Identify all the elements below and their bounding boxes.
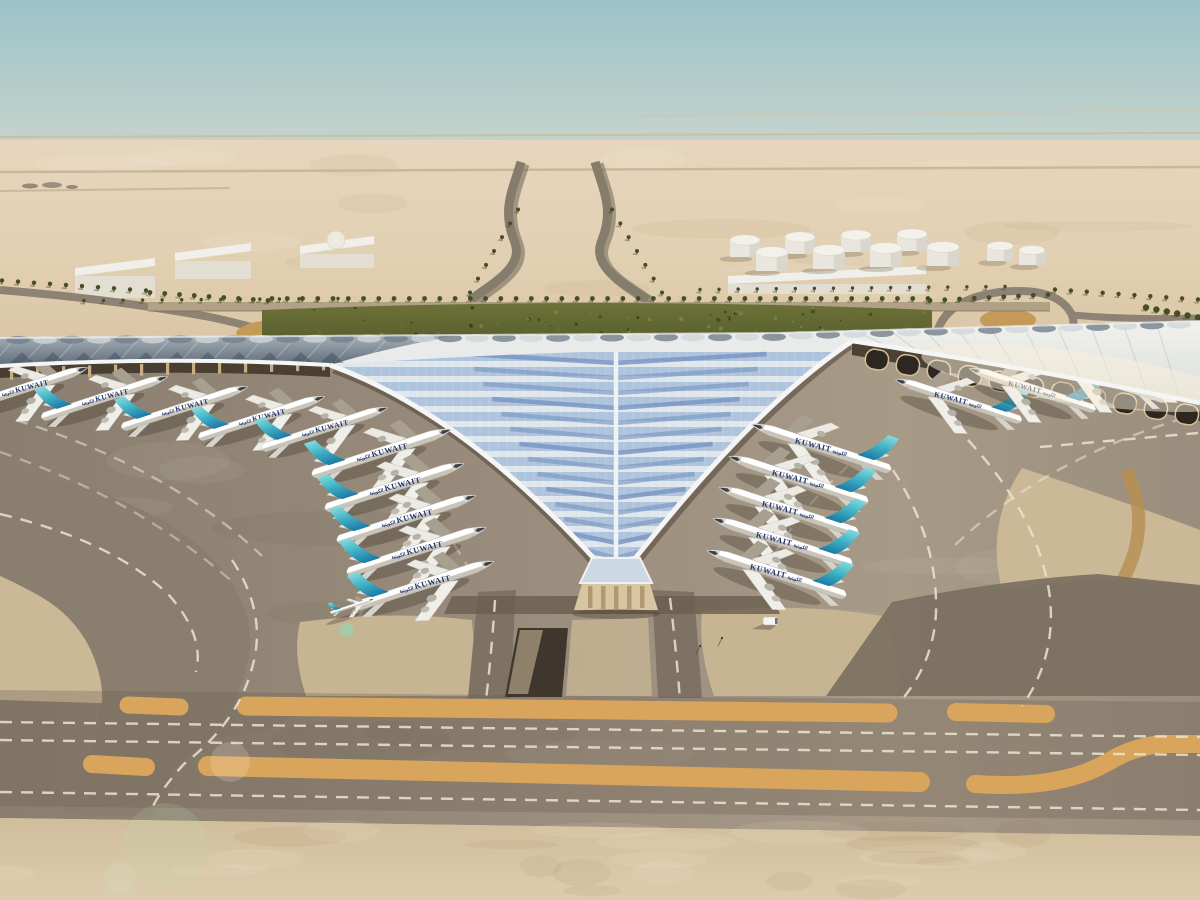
palm-tree bbox=[635, 249, 639, 253]
hedge-speckle bbox=[354, 307, 357, 310]
palm-tree bbox=[957, 297, 962, 302]
desert-patch bbox=[311, 154, 397, 176]
palm-tree bbox=[82, 299, 85, 302]
fuel-tank-top bbox=[1019, 246, 1045, 255]
palm-tree bbox=[331, 296, 336, 301]
pavilion-column bbox=[640, 586, 645, 608]
palm-tree bbox=[1164, 295, 1168, 299]
unpaved-strip bbox=[128, 705, 180, 707]
palm-shadow bbox=[315, 301, 319, 303]
palm-tree bbox=[1148, 294, 1152, 298]
apron-pole bbox=[699, 645, 701, 647]
palm-tree bbox=[80, 284, 84, 288]
palm-shadow bbox=[734, 291, 738, 293]
palm-tree bbox=[1180, 296, 1184, 300]
sand-stain bbox=[520, 855, 562, 877]
palm-shadow bbox=[139, 302, 143, 304]
hedge-speckle bbox=[800, 326, 802, 328]
palm-tree bbox=[1100, 291, 1104, 295]
palm-shadow bbox=[696, 292, 700, 294]
palm-tree bbox=[712, 296, 717, 301]
hedge-speckle bbox=[648, 318, 652, 322]
sand-island-center-left bbox=[297, 615, 478, 696]
hedge-speckle bbox=[527, 318, 530, 321]
palm-tree bbox=[207, 294, 212, 299]
palm-tree bbox=[251, 297, 256, 302]
palm-tree bbox=[660, 291, 664, 295]
palm-tree bbox=[514, 296, 519, 301]
hedge-speckle bbox=[479, 317, 482, 320]
hedge-speckle bbox=[363, 320, 365, 322]
palm-tree bbox=[484, 263, 488, 267]
apron-pole bbox=[721, 637, 723, 639]
palm-tree bbox=[160, 298, 163, 301]
roof-scallop bbox=[762, 333, 786, 341]
fuel-tank-top bbox=[927, 242, 959, 253]
palm-tree bbox=[361, 296, 366, 301]
hedge-speckle bbox=[626, 317, 628, 319]
palm-tree bbox=[682, 296, 687, 301]
palm-tree bbox=[605, 296, 610, 301]
unpaved-strip bbox=[956, 712, 1046, 714]
palm-tree bbox=[819, 296, 824, 301]
palm-tree bbox=[908, 286, 911, 289]
palm-tree bbox=[285, 296, 290, 301]
palm-shadow bbox=[236, 301, 240, 303]
palm-tree bbox=[666, 296, 671, 301]
hedge-speckle bbox=[774, 317, 778, 321]
palm-tree bbox=[946, 285, 949, 288]
palm-tree bbox=[180, 298, 183, 301]
palm-tree bbox=[1184, 312, 1190, 318]
palm-shadow bbox=[868, 290, 872, 292]
sand-stain bbox=[303, 820, 379, 842]
palm-tree bbox=[112, 286, 116, 290]
palm-shadow bbox=[944, 289, 948, 291]
palm-shadow bbox=[830, 290, 834, 292]
hedge-speckle bbox=[317, 330, 321, 334]
sand-stain bbox=[206, 849, 302, 869]
hedge-speckle bbox=[549, 325, 551, 327]
palm-tree bbox=[865, 296, 870, 301]
warehouse-front bbox=[175, 261, 251, 279]
palm-shadow bbox=[100, 302, 104, 304]
desert-patch bbox=[837, 197, 925, 214]
palm-tree bbox=[1132, 293, 1136, 297]
palm-tree bbox=[965, 285, 968, 288]
service-road-right bbox=[1072, 315, 1200, 319]
hedge-speckle bbox=[410, 321, 412, 323]
palm-tree bbox=[468, 291, 472, 295]
palm-tree bbox=[407, 296, 412, 301]
palm-tree bbox=[498, 296, 503, 301]
sand-stain bbox=[532, 823, 667, 838]
hedge-speckle bbox=[589, 312, 591, 314]
canopy-column bbox=[140, 364, 143, 376]
hedge-speckle bbox=[495, 322, 499, 326]
palm-shadow bbox=[276, 301, 280, 303]
unpaved-strip bbox=[92, 764, 146, 767]
sand-stain bbox=[836, 879, 907, 899]
sand-stain bbox=[563, 885, 622, 896]
palm-tree bbox=[851, 286, 854, 289]
palm-tree bbox=[775, 287, 778, 290]
palm-tree bbox=[483, 296, 488, 301]
palm-tree bbox=[128, 287, 132, 291]
palm-tree bbox=[1116, 292, 1120, 296]
palm-tree bbox=[559, 296, 564, 301]
palm-tree bbox=[1053, 287, 1057, 291]
palm-tree bbox=[422, 296, 427, 301]
fuel-tank-top bbox=[841, 230, 871, 240]
hedge-speckle bbox=[556, 327, 560, 331]
palm-tree bbox=[804, 296, 809, 301]
palm-tree bbox=[813, 287, 816, 290]
hedge-speckle bbox=[471, 306, 474, 309]
palm-tree bbox=[575, 296, 580, 301]
hedge-speckle bbox=[840, 320, 842, 322]
palm-tree bbox=[162, 291, 167, 296]
palm-tree bbox=[870, 286, 873, 289]
sand-stain bbox=[868, 851, 961, 864]
palm-tree bbox=[544, 296, 549, 301]
palm-tree bbox=[651, 296, 656, 301]
palm-tree bbox=[476, 277, 480, 281]
palm-tree bbox=[942, 297, 947, 302]
palm-shadow bbox=[791, 291, 795, 293]
hedge-speckle bbox=[719, 327, 723, 331]
pavilion-column bbox=[627, 586, 632, 609]
palm-tree bbox=[832, 286, 835, 289]
desert-patch bbox=[632, 219, 811, 239]
palm-shadow bbox=[772, 291, 776, 293]
palm-tree bbox=[300, 296, 305, 301]
palm-tree bbox=[717, 288, 720, 291]
palm-shadow bbox=[217, 301, 221, 303]
palm-tree bbox=[192, 293, 197, 298]
concrete-island-center bbox=[566, 618, 652, 696]
lens-flare-spot bbox=[104, 862, 136, 894]
fuel-tank-top bbox=[870, 243, 902, 254]
fuel-tank-top bbox=[785, 232, 815, 242]
palm-tree bbox=[1164, 308, 1170, 314]
hedge-speckle bbox=[699, 318, 701, 320]
palm-shadow bbox=[849, 290, 853, 292]
desert-patch bbox=[1002, 221, 1194, 231]
aerial-airport-rendering: الكويتية KUWAITالكويتية KUWAITالكويتية K… bbox=[0, 0, 1200, 900]
palm-tree bbox=[1031, 293, 1036, 298]
hedge-speckle bbox=[735, 311, 737, 313]
palm-tree bbox=[758, 296, 763, 301]
palm-tree bbox=[636, 296, 641, 301]
fuel-tank-top bbox=[897, 229, 927, 239]
hedge-speckle bbox=[551, 321, 555, 325]
hedge-speckle bbox=[707, 325, 710, 328]
palm-tree bbox=[516, 208, 520, 212]
palm-tree bbox=[620, 296, 625, 301]
hedge-speckle bbox=[716, 318, 721, 323]
palm-tree bbox=[727, 296, 732, 301]
palm-tree bbox=[1085, 290, 1089, 294]
sand-stain bbox=[553, 859, 610, 887]
render-canvas: الكويتية KUWAITالكويتية KUWAITالكويتية K… bbox=[0, 0, 1200, 900]
palm-tree bbox=[266, 298, 271, 303]
fuel-tank-top bbox=[730, 235, 760, 245]
palm-tree bbox=[1046, 292, 1051, 297]
palm-tree bbox=[317, 297, 320, 300]
sand-stain bbox=[464, 840, 559, 849]
fuel-tank-top bbox=[987, 242, 1013, 251]
palm-tree bbox=[141, 298, 144, 301]
hedge-speckle bbox=[848, 316, 852, 320]
lens-flare-spot bbox=[340, 623, 354, 637]
palm-tree bbox=[392, 296, 397, 301]
sand-stain bbox=[767, 872, 813, 892]
palm-tree bbox=[219, 298, 222, 301]
glazed-gable bbox=[580, 558, 652, 583]
fuel-tank-top bbox=[756, 247, 788, 258]
palm-tree bbox=[529, 296, 534, 301]
hedge-speckle bbox=[562, 310, 566, 314]
dome-structure bbox=[327, 231, 345, 249]
sand-stain bbox=[846, 836, 981, 853]
hedge-speckle bbox=[627, 328, 629, 330]
hedge-speckle bbox=[636, 316, 639, 319]
palm-tree bbox=[200, 298, 203, 301]
desert-patch bbox=[910, 159, 1053, 168]
palm-shadow bbox=[925, 289, 929, 291]
palm-tree bbox=[1143, 304, 1149, 310]
palm-tree bbox=[144, 288, 148, 292]
palm-tree bbox=[376, 296, 381, 301]
palm-shadow bbox=[178, 302, 182, 304]
palm-shadow bbox=[963, 289, 967, 291]
palm-shadow bbox=[1001, 289, 1005, 291]
lens-flare-spot bbox=[210, 742, 250, 782]
palm-tree bbox=[755, 287, 758, 290]
hedge-speckle bbox=[537, 318, 540, 321]
palm-tree bbox=[788, 296, 793, 301]
palm-tree bbox=[880, 296, 885, 301]
palm-tree bbox=[437, 296, 442, 301]
palm-tree bbox=[927, 286, 930, 289]
pavilion-column bbox=[601, 586, 606, 609]
hedge-speckle bbox=[483, 317, 485, 319]
palm-tree bbox=[743, 296, 748, 301]
hedge-speckle bbox=[400, 324, 403, 327]
palm-shadow bbox=[753, 291, 757, 293]
hedge-speckle bbox=[905, 324, 907, 326]
palm-tree bbox=[736, 287, 739, 290]
hedge-speckle bbox=[313, 309, 315, 311]
palm-shadow bbox=[80, 303, 84, 305]
hedge-speckle bbox=[469, 324, 473, 328]
hedge-speckle bbox=[709, 314, 711, 316]
hedge-speckle bbox=[819, 326, 821, 328]
sand-stain bbox=[729, 821, 868, 844]
hedge-speckle bbox=[792, 321, 794, 323]
hedge-speckle bbox=[598, 315, 601, 318]
palm-tree bbox=[697, 296, 702, 301]
palm-tree bbox=[148, 290, 153, 295]
hedge-speckle bbox=[575, 323, 578, 326]
palm-shadow bbox=[256, 301, 260, 303]
palm-tree bbox=[928, 298, 933, 303]
palm-tree bbox=[849, 296, 854, 301]
palm-tree bbox=[1016, 294, 1021, 299]
bus-windshield bbox=[775, 618, 778, 624]
palm-tree bbox=[336, 297, 339, 300]
palm-tree bbox=[346, 296, 351, 301]
palm-tree bbox=[895, 296, 900, 301]
palm-tree bbox=[258, 297, 261, 300]
palm-tree bbox=[652, 277, 656, 281]
hedge-speckle bbox=[679, 317, 683, 321]
palm-tree bbox=[48, 282, 52, 286]
palm-tree bbox=[96, 285, 100, 289]
palm-tree bbox=[889, 286, 892, 289]
palm-tree bbox=[102, 299, 105, 302]
palm-shadow bbox=[334, 301, 338, 303]
palm-tree bbox=[500, 235, 504, 239]
palm-tree bbox=[590, 296, 595, 301]
palm-tree bbox=[794, 287, 797, 290]
lens-flare-spot bbox=[123, 803, 207, 887]
hedge-speckle bbox=[480, 324, 484, 328]
palm-shadow bbox=[158, 302, 162, 304]
desert-patch bbox=[337, 193, 407, 213]
palm-shadow bbox=[906, 289, 910, 291]
palm-tree bbox=[64, 283, 68, 287]
hedge-speckle bbox=[724, 311, 727, 314]
palm-tree bbox=[1069, 288, 1073, 292]
palm-tree bbox=[1174, 310, 1180, 316]
canopy-column bbox=[218, 361, 221, 373]
desert-patch bbox=[127, 149, 237, 166]
pavilion-column bbox=[614, 586, 619, 609]
sand-stain bbox=[964, 842, 1027, 860]
palm-tree bbox=[32, 281, 36, 285]
palm-shadow bbox=[119, 302, 123, 304]
palm-tree bbox=[16, 279, 20, 283]
palm-tree bbox=[121, 298, 124, 301]
palm-shadow bbox=[715, 291, 719, 293]
palm-tree bbox=[627, 235, 631, 239]
palm-tree bbox=[1001, 294, 1006, 299]
palm-tree bbox=[468, 296, 473, 301]
unpaved-strip bbox=[246, 706, 888, 713]
palm-shadow bbox=[197, 302, 201, 304]
palm-tree bbox=[508, 221, 512, 225]
fuel-tank-top bbox=[813, 245, 845, 256]
palm-shadow bbox=[811, 290, 815, 292]
desert-patch bbox=[601, 148, 685, 171]
palm-tree bbox=[910, 296, 915, 301]
sand-stain bbox=[611, 851, 707, 869]
hedge-speckle bbox=[869, 313, 873, 317]
palm-tree bbox=[278, 297, 281, 300]
palm-tree bbox=[987, 295, 992, 300]
pavilion-shadow bbox=[572, 609, 660, 619]
palm-tree bbox=[0, 278, 4, 282]
canopy-column bbox=[166, 363, 169, 375]
palm-tree bbox=[610, 208, 614, 212]
palm-tree bbox=[834, 296, 839, 301]
hedge-speckle bbox=[811, 307, 814, 310]
palm-tree bbox=[972, 296, 977, 301]
palm-tree bbox=[618, 221, 622, 225]
palm-tree bbox=[698, 288, 701, 291]
canopy-column bbox=[88, 365, 91, 377]
palm-shadow bbox=[295, 301, 299, 303]
palm-tree bbox=[1153, 306, 1159, 312]
pavilion-column bbox=[588, 586, 593, 608]
hedge-speckle bbox=[739, 311, 743, 315]
pavement-stain bbox=[159, 457, 244, 484]
palm-tree bbox=[643, 263, 647, 267]
palm-tree bbox=[239, 298, 242, 301]
hedge-speckle bbox=[802, 313, 805, 316]
palm-tree bbox=[773, 296, 778, 301]
hedge-speckle bbox=[446, 319, 448, 321]
palm-tree bbox=[453, 296, 458, 301]
palm-tree bbox=[297, 297, 300, 300]
hedge-speckle bbox=[867, 308, 870, 311]
palm-tree bbox=[1196, 297, 1200, 301]
hedge-speckle bbox=[923, 311, 925, 313]
entrance-pavilion bbox=[572, 584, 660, 619]
hedge-speckle bbox=[727, 318, 729, 320]
palm-tree bbox=[1003, 285, 1006, 288]
canopy-column bbox=[192, 362, 195, 374]
hedge-speckle bbox=[554, 310, 558, 314]
palm-shadow bbox=[887, 290, 891, 292]
palm-tree bbox=[492, 249, 496, 253]
warehouse-front bbox=[300, 254, 374, 268]
palm-shadow bbox=[982, 289, 986, 291]
palm-tree bbox=[177, 292, 182, 297]
palm-tree bbox=[984, 285, 987, 288]
